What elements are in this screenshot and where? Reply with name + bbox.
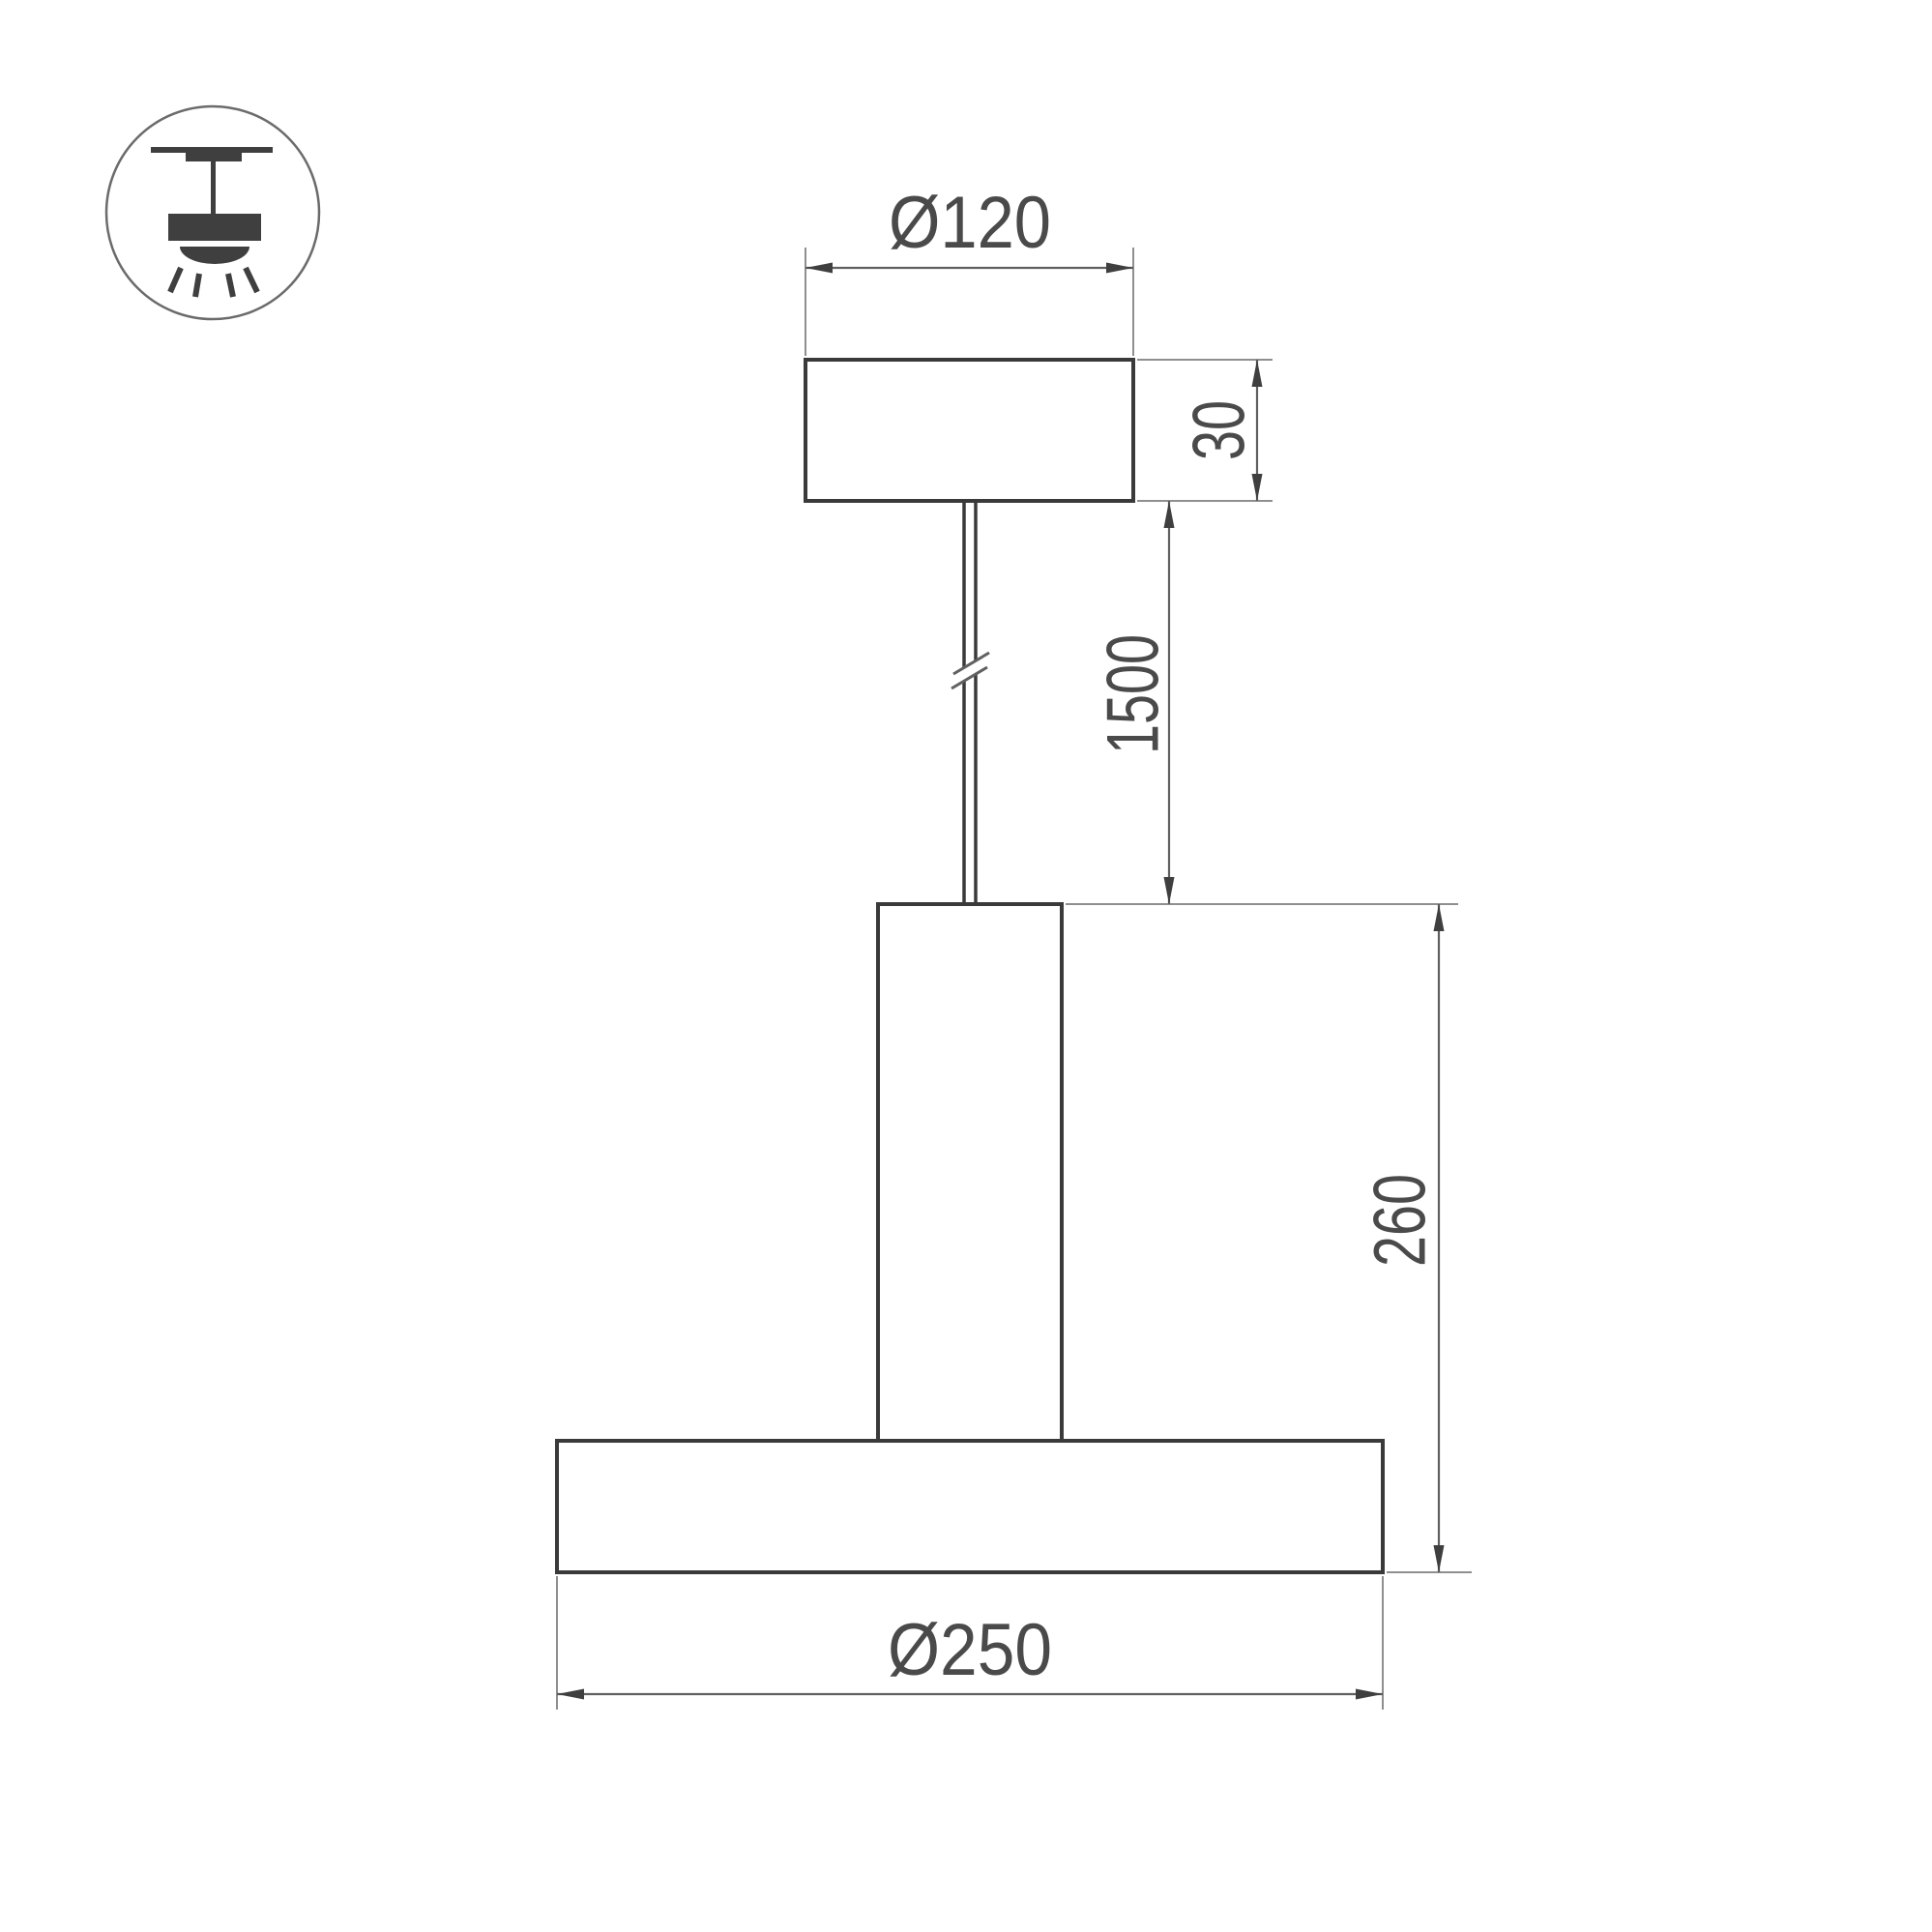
- dim-arrow-left: [805, 263, 833, 274]
- dimension-label-suspension-length: 1500: [1093, 634, 1175, 754]
- lamp-body-outline: [878, 904, 1062, 1441]
- icon-lamp-body: [168, 214, 261, 241]
- drawing-page: Ø120 30 1500 260: [0, 0, 1932, 1932]
- dim-arrow-right: [1106, 263, 1133, 274]
- pendant-lamp-technical-drawing: Ø120 30 1500 260: [0, 0, 1932, 1932]
- dim-arrow-up: [1434, 904, 1445, 931]
- dim-arrow-right: [1356, 1689, 1383, 1700]
- dimension-canopy-diameter: Ø120: [805, 182, 1133, 356]
- dim-arrow-down: [1252, 474, 1263, 501]
- dimension-suspension-length: 1500: [1066, 501, 1458, 904]
- luminaire-outline: [557, 360, 1383, 1572]
- dimension-label-canopy-height: 30: [1179, 400, 1261, 460]
- dim-arrow-up: [1164, 501, 1175, 528]
- dimension-label-canopy-diameter: Ø120: [889, 182, 1051, 264]
- cable-break-symbol: [951, 653, 989, 688]
- icon-canopy-mount: [186, 152, 242, 161]
- dimension-label-shade-diameter: Ø250: [888, 1609, 1052, 1691]
- icon-suspension-stem: [211, 161, 216, 217]
- dim-arrow-up: [1252, 360, 1263, 387]
- dimension-shade-diameter: Ø250: [557, 1576, 1383, 1710]
- diffuser-disc-outline: [557, 1441, 1383, 1572]
- canopy-outline: [805, 360, 1133, 501]
- dim-arrow-left: [557, 1689, 584, 1700]
- dim-arrow-down: [1434, 1545, 1445, 1572]
- dimension-canopy-height: 30: [1137, 360, 1273, 501]
- dimension-label-fixture-height: 260: [1360, 1174, 1442, 1267]
- icon-diffuser-dome: [180, 247, 249, 264]
- mounting-type-icon: [106, 106, 319, 319]
- icon-light-rays: [170, 268, 257, 297]
- dim-arrow-down: [1164, 877, 1175, 904]
